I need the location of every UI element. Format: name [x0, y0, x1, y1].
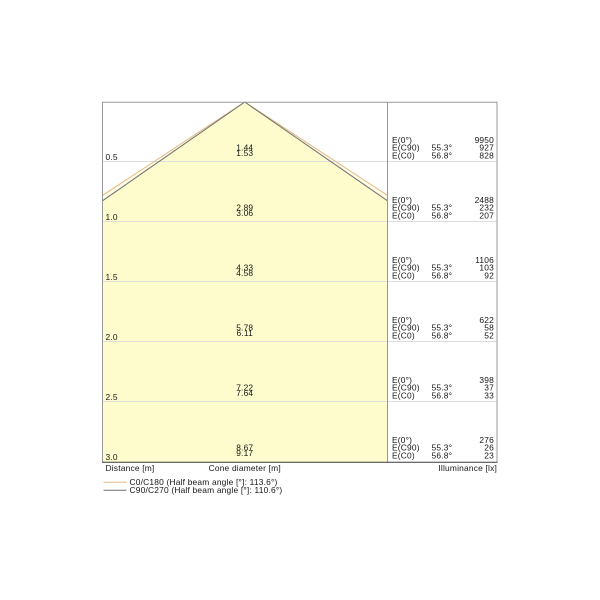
svg-text:C90/C270 (Half beam angle [°]:: C90/C270 (Half beam angle [°]: 110.6°): [130, 485, 283, 495]
svg-text:3.06: 3.06: [236, 208, 253, 218]
svg-text:E(C0): E(C0): [392, 390, 415, 400]
svg-text:E(C0): E(C0): [392, 450, 415, 460]
svg-text:56.8°: 56.8°: [432, 210, 453, 220]
svg-text:E(C0): E(C0): [392, 270, 415, 280]
svg-text:56.8°: 56.8°: [432, 390, 453, 400]
svg-text:0.5: 0.5: [106, 152, 118, 162]
svg-text:Illuminance [lx]: Illuminance [lx]: [438, 463, 497, 473]
svg-text:E(C0): E(C0): [392, 150, 415, 160]
svg-text:2.0: 2.0: [106, 332, 118, 342]
svg-text:207: 207: [479, 210, 494, 220]
svg-text:52: 52: [484, 330, 494, 340]
svg-text:2.5: 2.5: [106, 392, 118, 402]
svg-text:9.17: 9.17: [236, 448, 253, 458]
svg-text:1.5: 1.5: [106, 272, 118, 282]
svg-text:E(C0): E(C0): [392, 330, 415, 340]
svg-text:1.0: 1.0: [106, 212, 118, 222]
svg-text:Distance [m]: Distance [m]: [106, 463, 155, 473]
svg-text:3.0: 3.0: [106, 452, 118, 462]
svg-text:56.8°: 56.8°: [432, 330, 453, 340]
svg-text:6.11: 6.11: [237, 328, 254, 338]
svg-text:4.58: 4.58: [236, 268, 253, 278]
svg-text:92: 92: [484, 270, 494, 280]
svg-text:828: 828: [479, 150, 494, 160]
svg-text:33: 33: [484, 390, 494, 400]
svg-text:56.8°: 56.8°: [432, 150, 453, 160]
svg-text:1.53: 1.53: [236, 148, 253, 158]
svg-text:7.64: 7.64: [236, 388, 253, 398]
svg-text:Cone diameter [m]: Cone diameter [m]: [209, 463, 281, 473]
svg-text:56.8°: 56.8°: [432, 450, 453, 460]
svg-text:23: 23: [484, 450, 494, 460]
svg-text:56.8°: 56.8°: [432, 270, 453, 280]
svg-text:E(C0): E(C0): [392, 210, 415, 220]
